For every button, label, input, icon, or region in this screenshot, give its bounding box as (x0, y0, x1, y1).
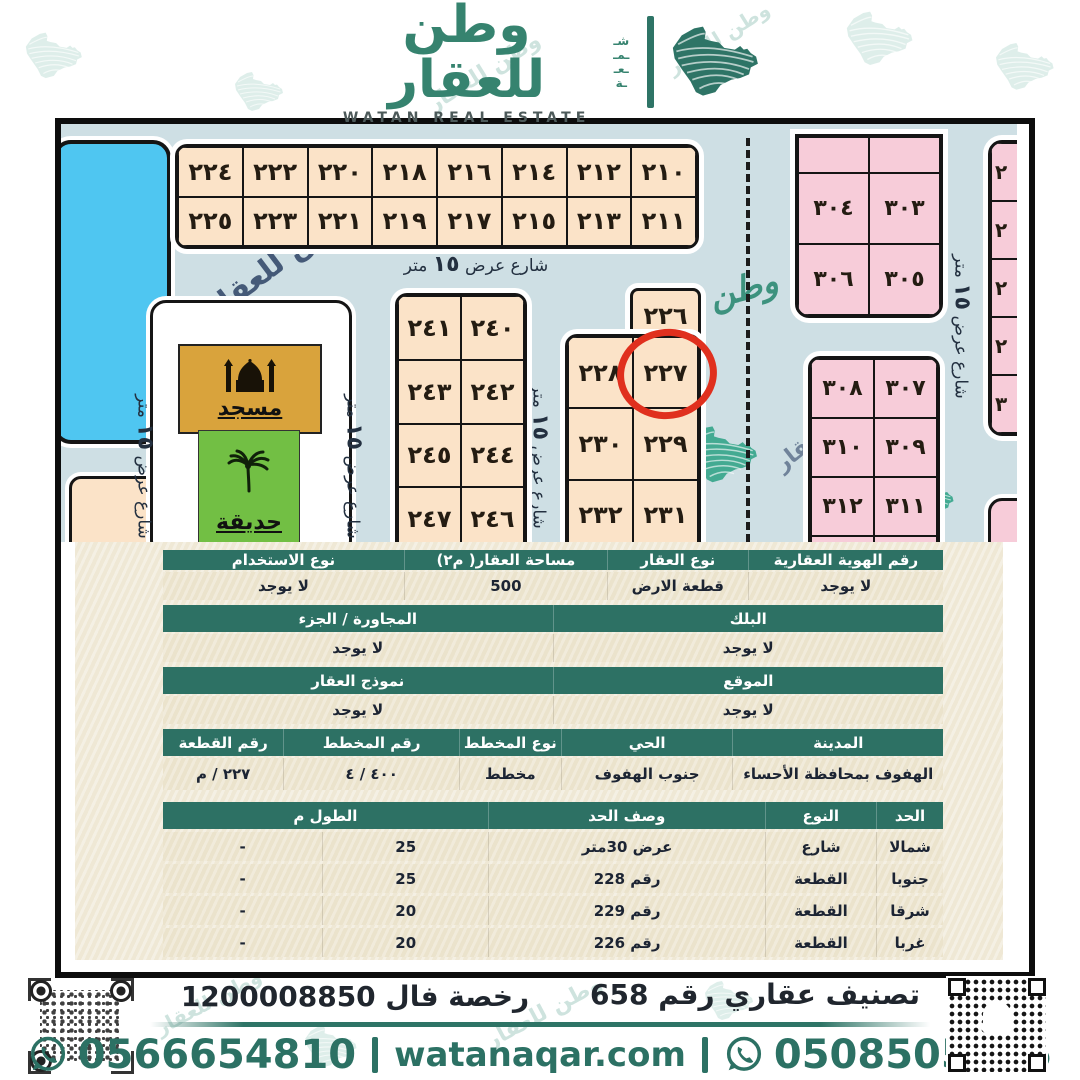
deed-cell: - (163, 864, 322, 893)
plot-row: ٣١٢٣١١ (811, 477, 937, 536)
brand-side-letter: شـ (613, 35, 629, 47)
qr-finder-dot (30, 980, 52, 1002)
qr-finder-dot (110, 980, 132, 1002)
plot-cell-٢٢٤: ٢٢٤ (178, 147, 243, 197)
deed-cell: رقم 228 (488, 864, 764, 893)
street-text: شارع عرض (465, 256, 548, 276)
deed-cell: شرقا (876, 896, 943, 925)
deed-value-row: لا يوجدقطعة الارض500لا يوجد (163, 572, 943, 600)
street-label-vertical: شارع عرض ١٥ متر (342, 377, 367, 543)
partial-pink-plot (988, 498, 1017, 542)
deed-cell: عرض 30متر (488, 832, 764, 861)
plot-row: ٢٣٢٢٣١ (568, 480, 698, 542)
deed-cell: لا يوجد (163, 634, 553, 662)
deed-cell: لا يوجد (748, 572, 943, 600)
plot-cell-٣٠٥: ٣٠٥ (869, 244, 940, 315)
deed-cell: المدينة (732, 729, 943, 756)
plot-row: ٢٣٠٢٢٩ (568, 408, 698, 479)
qr-finder-square (948, 978, 966, 996)
plot-row: ٣ (991, 375, 1017, 433)
plot-row: ٣٠٤٣٠٣ (798, 173, 940, 244)
plot-cell-٣٠٩: ٣٠٩ (874, 418, 937, 477)
garden-block: حديقة (198, 430, 300, 542)
brand-side-letter: ـعـ (614, 63, 629, 75)
deed-cell: جنوب الهفوف (561, 758, 733, 790)
plot-cell-٢٤٧: ٢٤٧ (398, 487, 461, 542)
saudi-map-logo-icon (664, 10, 770, 114)
plot-block-210-225: ٢٢٤٢٢٢٢٢٠٢١٨٢١٦٢١٤٢١٢٢١٠٢٢٥٢٢٣٢٢١٢١٩٢١٧٢… (175, 144, 699, 249)
watermark-map-icon (20, 26, 90, 86)
plot-row: ٢ (991, 259, 1017, 317)
qr-finder-square (1028, 978, 1046, 996)
deed-cell: نوع العقار (607, 550, 748, 570)
phone-left[interactable]: 0566654810 (28, 1032, 356, 1078)
plot-cell-empty (869, 137, 940, 173)
plot-cell-٢٤٠: ٢٤٠ (461, 296, 524, 360)
deed-cell: الهفوف بمحافظة الأحساء (732, 758, 943, 790)
deed-cell: جنوبا (876, 864, 943, 893)
deed-header-row: البلكالمجاورة / الجزء (163, 605, 943, 632)
deed-cell: 20 (322, 896, 488, 925)
deed-cell: غربا (876, 928, 943, 957)
street-width-number: ١٥ (133, 423, 158, 450)
boundary-row-south: جنوباالقطعةرقم 22825- (163, 864, 943, 893)
plot-cell-٢١٥: ٢١٥ (502, 197, 567, 247)
plot-row: ٣٠٦٣٠٥ (798, 244, 940, 315)
plot-block-240-247: ٢٤١٢٤٠٢٤٣٢٤٢٢٤٥٢٤٤٢٤٧٢٤٦ (395, 293, 527, 542)
whatsapp-icon (28, 1035, 68, 1075)
deed-cell: نموذج العقار (163, 667, 553, 694)
plot-row: ٢٢٤٢٢٢٢٢٠٢١٨٢١٦٢١٤٢١٢٢١٠ (178, 147, 696, 197)
deed-cell: شارع (765, 832, 876, 861)
deed-cell: رقم 226 (488, 928, 764, 957)
deed-value-row: لا يوجدلا يوجد (163, 634, 943, 662)
plot-cell-empty (798, 137, 869, 173)
deed-value-row: لا يوجدلا يوجد (163, 696, 943, 724)
street-text: متر (134, 394, 154, 418)
plot-row: ٢ (991, 201, 1017, 259)
plot-cell-٢١٧: ٢١٧ (437, 197, 502, 247)
deed-cell: الحي (561, 729, 733, 756)
plot-cell-٣٠٦: ٣٠٦ (798, 244, 869, 315)
watermark-map-icon (990, 36, 1062, 98)
street-label-horizontal: شارع عرض ١٥ متر (391, 252, 561, 277)
deed-cell: لا يوجد (553, 634, 944, 662)
website-link[interactable]: watanaqar.com (394, 1035, 686, 1075)
street-width-number: ١٥ (528, 413, 553, 440)
deed-cell: - (163, 832, 322, 861)
brand-divider-bar (647, 16, 653, 108)
brand-name-arabic: وطن للعقار (330, 0, 603, 108)
deed-cell: ٤٠٠ / ٤ (283, 758, 459, 790)
plot-row: ٢٢٥٢٢٣٢٢١٢١٩٢١٧٢١٥٢١٣٢١١ (178, 197, 696, 247)
plot-cell-٢٢٢: ٢٢٢ (243, 147, 308, 197)
plot-cell-٢٤٦: ٢٤٦ (461, 487, 524, 542)
plot-cell-٢٤٣: ٢٤٣ (398, 360, 461, 424)
deed-cell: لا يوجد (163, 572, 404, 600)
brand-side-letter: ـمـ (613, 49, 629, 61)
plot-cell-٢٣١: ٢٣١ (633, 480, 698, 542)
deed-cell: لا يوجد (163, 696, 553, 724)
plot-cell-٢١٩: ٢١٩ (372, 197, 437, 247)
contact-separator (372, 1037, 378, 1073)
plot-cell-٢١٣: ٢١٣ (567, 197, 632, 247)
plot-cell-٢٢١: ٢٢١ (308, 197, 373, 247)
plot-row (798, 137, 940, 173)
street-text: شارع عرض (343, 456, 363, 539)
plot-cell-٢٤٥: ٢٤٥ (398, 424, 461, 488)
plot-cell-٣٠٨: ٣٠٨ (811, 359, 874, 418)
whatsapp-icon (724, 1035, 764, 1075)
flyer-frame: وطن للعقار للعقار طن للعقار وطن ٢٢٤٢٢٢٢٢… (55, 118, 1035, 978)
plot-cell-٢١٨: ٢١٨ (372, 147, 437, 197)
street-label-vertical: شارع عرض ١٥ متر (950, 237, 975, 417)
plot-cell-٢٣٠: ٢٣٠ (568, 408, 633, 479)
street-text: متر (529, 384, 549, 408)
mosque-block: مسجد (178, 344, 322, 434)
boundaries-header-row: الحدالنوعوصف الحدالطول م (163, 802, 943, 829)
deed-cell: رقم 229 (488, 896, 764, 925)
deed-cell: شمالا (876, 832, 943, 861)
deed-value-row: الهفوف بمحافظة الأحساءجنوب الهفوفمخطط٤٠٠… (163, 758, 943, 790)
brand-side-letter: ـة (616, 77, 627, 89)
deed-cell: - (163, 928, 322, 957)
plot-row: ٢ (991, 317, 1017, 375)
boundary-row-west: غرباالقطعةرقم 22620- (163, 928, 943, 957)
plot-row: ٢٤٧٢٤٦ (398, 487, 524, 542)
deed-cell: قطعة الارض (607, 572, 748, 600)
deed-cell: 500 (404, 572, 607, 600)
phone-number: 0566654810 (78, 1032, 356, 1078)
plot-cell-٣١١: ٣١١ (874, 477, 937, 536)
street-text: شارع عرض (529, 446, 549, 529)
watermark-map-icon (840, 4, 922, 74)
deed-cell: وصف الحد (488, 802, 765, 829)
plot-cell-٢١٢: ٢١٢ (567, 147, 632, 197)
qr-finder-square (948, 1054, 966, 1072)
brand-header: وطن للعقار WATAN REAL ESTATE شـ ـمـ ـعـ … (330, 6, 770, 118)
plot-cell-٣٠٤: ٣٠٤ (798, 173, 869, 244)
mosque-label: مسجد (218, 396, 283, 421)
plot-cell-٢١٦: ٢١٦ (437, 147, 502, 197)
deed-cell: رقم المخطط (283, 729, 459, 756)
boundary-row-north: شمالاشارععرض 30متر25- (163, 832, 943, 861)
footer-divider (150, 1022, 930, 1027)
plot-cell-٣: ٣ (991, 375, 1017, 433)
brand-side-letters: شـ ـمـ ـعـ ـة (613, 35, 629, 89)
street-text: شارع عرض (134, 456, 154, 539)
deed-cell: 25 (322, 864, 488, 893)
street-text: متر (951, 254, 971, 278)
deed-header-row: رقم الهوية العقاريةنوع العقارمساحة العقا… (163, 550, 943, 570)
plot-block-303-306: ٣٠٤٣٠٣٣٠٦٣٠٥ (795, 134, 943, 318)
plot-row: ٣١٠٣٠٩ (811, 418, 937, 477)
deed-cell: القطعة (765, 896, 876, 925)
contact-separator (702, 1037, 708, 1073)
plot-row: ٢٤٥٢٤٤ (398, 424, 524, 488)
deed-cell: مخطط (459, 758, 561, 790)
plot-cell-٣١٢: ٣١٢ (811, 477, 874, 536)
deed-header-row: الموقعنموذج العقار (163, 667, 943, 694)
plot-cell-٢١١: ٢١١ (631, 197, 696, 247)
deed-cell: نوع الاستخدام (163, 550, 404, 570)
deed-cell: لا يوجد (553, 696, 944, 724)
deed-cell: 25 (322, 832, 488, 861)
deed-table-section: رقم الهوية العقاريةنوع العقارمساحة العقا… (75, 542, 1003, 960)
plot-cell-٢٢٥: ٢٢٥ (178, 197, 243, 247)
boundary-row-east: شرقاالقطعةرقم 22920- (163, 896, 943, 925)
plot-cell-٢: ٢ (991, 259, 1017, 317)
mosque-icon (218, 358, 282, 394)
snapchat-ghost-icon (972, 998, 1022, 1052)
contact-row: 0566654810 watanaqar.com 0508505505 (0, 1032, 1080, 1078)
plot-row: ٢ (991, 143, 1017, 201)
deed-cell: - (163, 896, 322, 925)
street-width-number: ١٥ (433, 252, 460, 277)
plot-row: ٢٤١٢٤٠ (398, 296, 524, 360)
street-width-number: ١٥ (342, 423, 367, 450)
deed-cell: الموقع (553, 667, 944, 694)
deed-cell: الطول م (163, 802, 488, 829)
palm-tree-icon (226, 447, 272, 493)
deed-cell: النوع (765, 802, 876, 829)
plot-block-307-312: ٣٠٨٣٠٧٣١٠٣٠٩٣١٢٣١١ (808, 356, 940, 542)
fal-license: رخصة فال 1200008850 (170, 980, 540, 1013)
deed-cell: مساحة العقار( م٢) (404, 550, 607, 570)
deed-cell: القطعة (765, 864, 876, 893)
plot-row: ٣٠٨٣٠٧ (811, 359, 937, 418)
plots-map: وطن للعقار للعقار طن للعقار وطن ٢٢٤٢٢٢٢٢… (61, 124, 1017, 542)
plot-cell-٢٢٠: ٢٢٠ (308, 147, 373, 197)
plot-cell-٢١٤: ٢١٤ (502, 147, 567, 197)
deed-cell: 20 (322, 928, 488, 957)
street-text: متر (343, 394, 363, 418)
deed-cell: ٢٢٧ / م (163, 758, 283, 790)
street-width-number: ١٥ (950, 283, 975, 310)
deed-cell: الحد (876, 802, 943, 829)
footer: رخصة فال 1200008850 تصنيف عقاري رقم 658 … (0, 966, 1080, 1080)
deed-cell: القطعة (765, 928, 876, 957)
plot-cell-٣١٠: ٣١٠ (811, 418, 874, 477)
garden-label: حديقة (216, 510, 282, 535)
qr-finder-square (1028, 1054, 1046, 1072)
plot-cell-٢٣٢: ٢٣٢ (568, 480, 633, 542)
street-text: شارع عرض (951, 316, 971, 399)
plot-row: ٢٤٣٢٤٢ (398, 360, 524, 424)
plot-cell-٢١٠: ٢١٠ (631, 147, 696, 197)
plot-cell-٢٤٤: ٢٤٤ (461, 424, 524, 488)
classification-number: تصنيف عقاري رقم 658 (570, 978, 940, 1011)
snapchat-qr-code (946, 976, 1048, 1074)
deed-cell: البلك (553, 605, 944, 632)
brand-name-english: WATAN REAL ESTATE (330, 110, 603, 126)
plot-cell-٣٠٣: ٣٠٣ (869, 173, 940, 244)
brand-wordmark: وطن للعقار WATAN REAL ESTATE (330, 0, 603, 126)
deed-cell: نوع المخطط (459, 729, 561, 756)
plot-cell-٢٤٢: ٢٤٢ (461, 360, 524, 424)
plot-cell-٢: ٢ (991, 201, 1017, 259)
deed-cell: رقم القطعة (163, 729, 283, 756)
plot-cell-٢٢٣: ٢٢٣ (243, 197, 308, 247)
deed-cell: المجاورة / الجزء (163, 605, 553, 632)
plot-cell-٢: ٢ (991, 143, 1017, 201)
plot-block-right-edge: ٢٢٢٢٣ (988, 140, 1017, 436)
watermark-map-icon (230, 66, 290, 118)
plot-cell-٢٤١: ٢٤١ (398, 296, 461, 360)
deed-table: رقم الهوية العقاريةنوع العقارمساحة العقا… (163, 550, 943, 960)
deed-header-row: المدينةالحينوع المخططرقم المخططرقم القطع… (163, 729, 943, 756)
street-text: متر (404, 256, 428, 276)
plot-cell-٣٠٧: ٣٠٧ (874, 359, 937, 418)
dashed-road-line (746, 138, 750, 542)
street-label-vertical: شارع عرض ١٥ متر (528, 367, 553, 543)
street-label-vertical: شارع عرض ١٥ متر (133, 377, 158, 543)
map-watermark-script: وطن (705, 261, 782, 317)
plot-cell-٢: ٢ (991, 317, 1017, 375)
deed-cell: رقم الهوية العقارية (748, 550, 943, 570)
real-estate-flyer: { "brand": { "name_ar": "وطن للعقار", "n… (0, 0, 1080, 1080)
